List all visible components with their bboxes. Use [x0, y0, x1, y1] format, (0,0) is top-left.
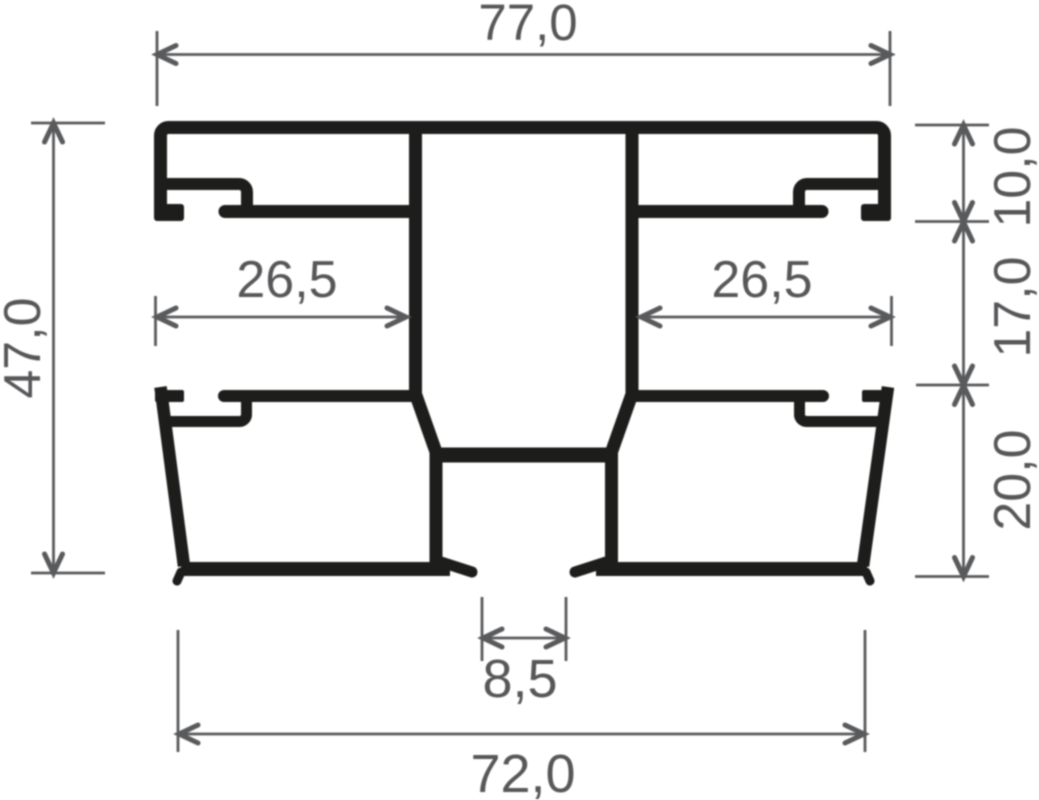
svg-text:47,0: 47,0 [0, 297, 52, 398]
svg-text:26,5: 26,5 [711, 251, 812, 309]
svg-text:77,0: 77,0 [478, 0, 577, 51]
svg-text:8,5: 8,5 [482, 649, 557, 709]
svg-text:72,0: 72,0 [470, 744, 575, 800]
svg-text:26,5: 26,5 [236, 251, 337, 309]
svg-text:10,0: 10,0 [984, 126, 1039, 227]
svg-text:20,0: 20,0 [984, 429, 1039, 530]
svg-text:17,0: 17,0 [984, 256, 1039, 357]
